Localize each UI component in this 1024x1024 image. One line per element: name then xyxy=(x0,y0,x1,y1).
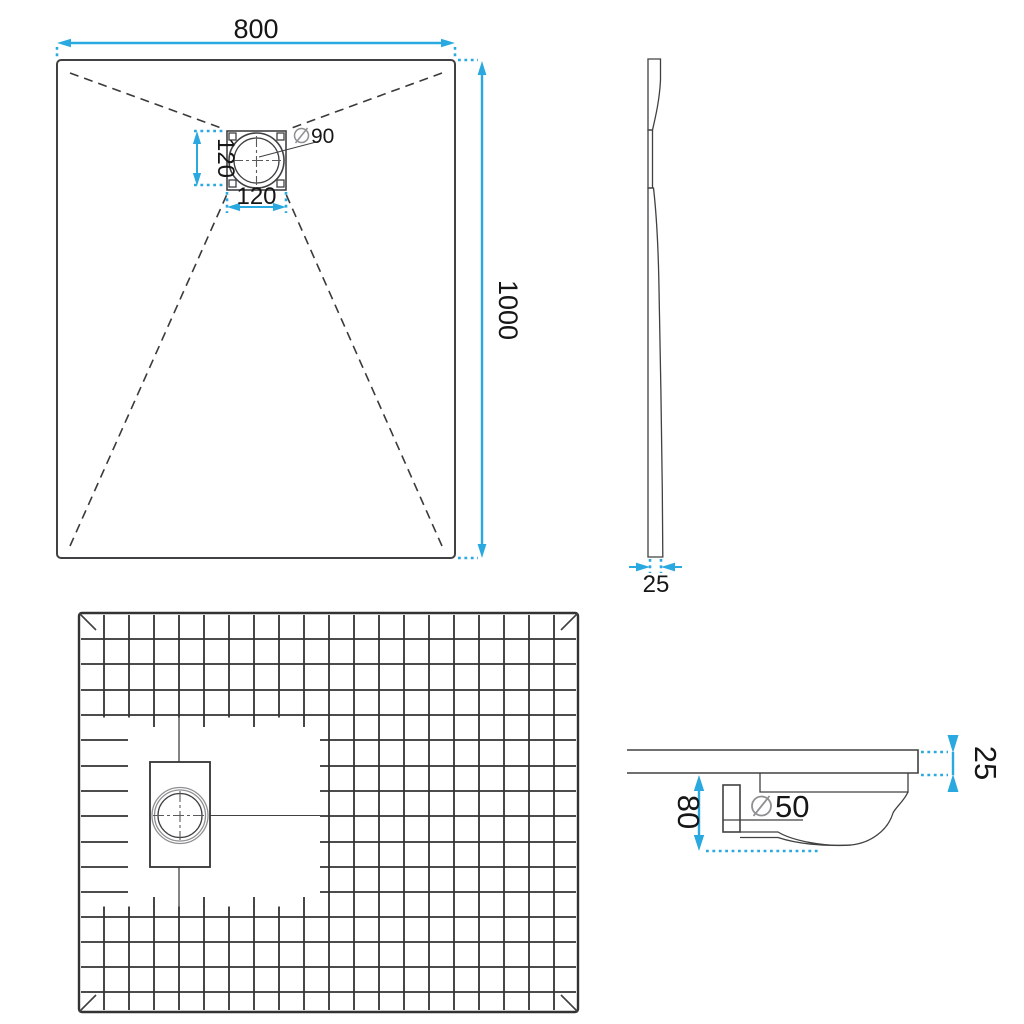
profile-upper-section xyxy=(648,59,661,130)
dim-drain-box-height: 120 xyxy=(193,131,239,186)
width-label: 800 xyxy=(233,14,278,44)
diameter-symbol-icon xyxy=(295,128,309,143)
drain-corner-tab xyxy=(277,133,284,140)
drain-diameter-label: 90 xyxy=(311,125,334,148)
diameter-symbol-icon xyxy=(752,796,771,816)
dim-length-1000: 1000 xyxy=(458,60,523,558)
drain-corner-tab xyxy=(229,180,236,187)
tray-slab-section xyxy=(627,750,918,773)
dim-width-800: 800 xyxy=(57,14,455,59)
side-profile-view: 25 xyxy=(629,59,682,598)
install-height-label: 80 xyxy=(671,795,706,829)
drain-box-width-label: 120 xyxy=(236,183,276,210)
shower-tray-technical-drawing: 90 800 1000 120 120 xyxy=(0,0,1024,1024)
technical-drawing-canvas: 90 800 1000 120 120 xyxy=(0,0,1024,1024)
drain-corner-tab xyxy=(277,180,284,187)
profile-lower-section xyxy=(648,188,663,557)
section-detail-view: 50 80 25 xyxy=(627,735,1003,851)
profile-drain-throat xyxy=(648,130,653,188)
drain-box-height-label: 120 xyxy=(212,138,239,178)
dim-drain-diameter: 90 xyxy=(259,125,334,157)
drain-trap: 50 xyxy=(723,785,908,845)
side-thickness-label: 25 xyxy=(643,571,670,598)
pipe-diameter-label: 50 xyxy=(775,789,809,824)
dim-thickness-25: 25 xyxy=(629,559,682,598)
trap-flange xyxy=(723,785,740,832)
section-thickness-label: 25 xyxy=(968,746,1003,780)
dim-section-thickness-25: 25 xyxy=(921,735,1003,792)
texture-bottom-view xyxy=(79,613,578,1012)
tray-outline xyxy=(57,60,455,558)
smooth-drain-zone xyxy=(82,718,320,907)
top-view: 90 800 1000 120 120 xyxy=(57,14,523,558)
length-label: 1000 xyxy=(493,280,523,340)
